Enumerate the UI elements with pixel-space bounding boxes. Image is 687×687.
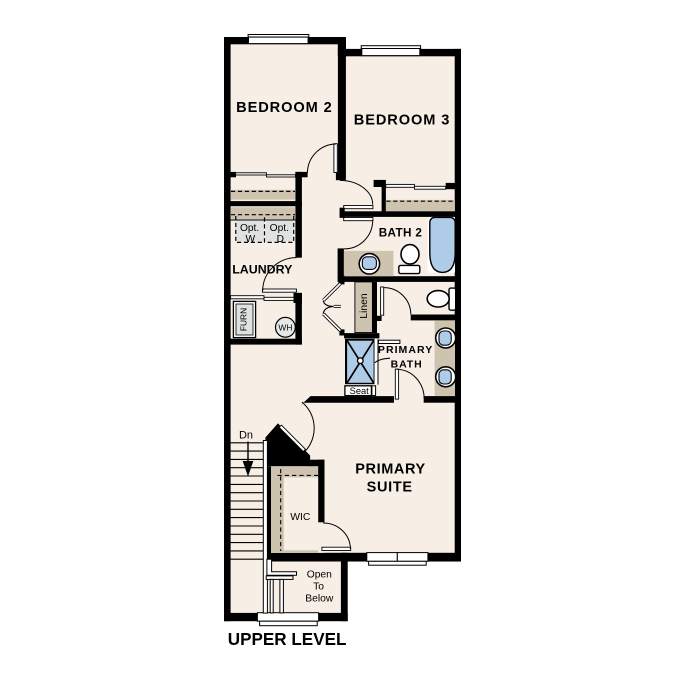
svg-text:BATH: BATH xyxy=(391,358,423,370)
svg-text:Dn: Dn xyxy=(239,429,253,441)
svg-text:BEDROOM 3: BEDROOM 3 xyxy=(354,113,450,129)
svg-text:WH: WH xyxy=(278,322,292,332)
svg-text:SUITE: SUITE xyxy=(367,480,413,496)
svg-text:LAUNDRY: LAUNDRY xyxy=(232,262,293,276)
svg-text:Open: Open xyxy=(307,569,332,580)
svg-text:To: To xyxy=(313,582,324,593)
svg-text:WIC: WIC xyxy=(290,512,311,523)
svg-text:D: D xyxy=(277,234,284,245)
svg-text:Seat: Seat xyxy=(350,386,370,396)
svg-text:Opt.: Opt. xyxy=(270,223,289,234)
svg-text:W: W xyxy=(245,234,255,245)
svg-text:BEDROOM 2: BEDROOM 2 xyxy=(236,100,332,116)
svg-text:Linen: Linen xyxy=(359,293,370,319)
svg-text:PRIMARY: PRIMARY xyxy=(355,461,426,477)
svg-text:FURN: FURN xyxy=(239,308,249,331)
svg-text:Below: Below xyxy=(305,594,334,605)
svg-text:Opt.: Opt. xyxy=(240,223,259,234)
svg-text:PRIMARY: PRIMARY xyxy=(378,344,433,356)
svg-text:BATH 2: BATH 2 xyxy=(379,226,423,239)
svg-text:UPPER LEVEL: UPPER LEVEL xyxy=(228,630,347,649)
